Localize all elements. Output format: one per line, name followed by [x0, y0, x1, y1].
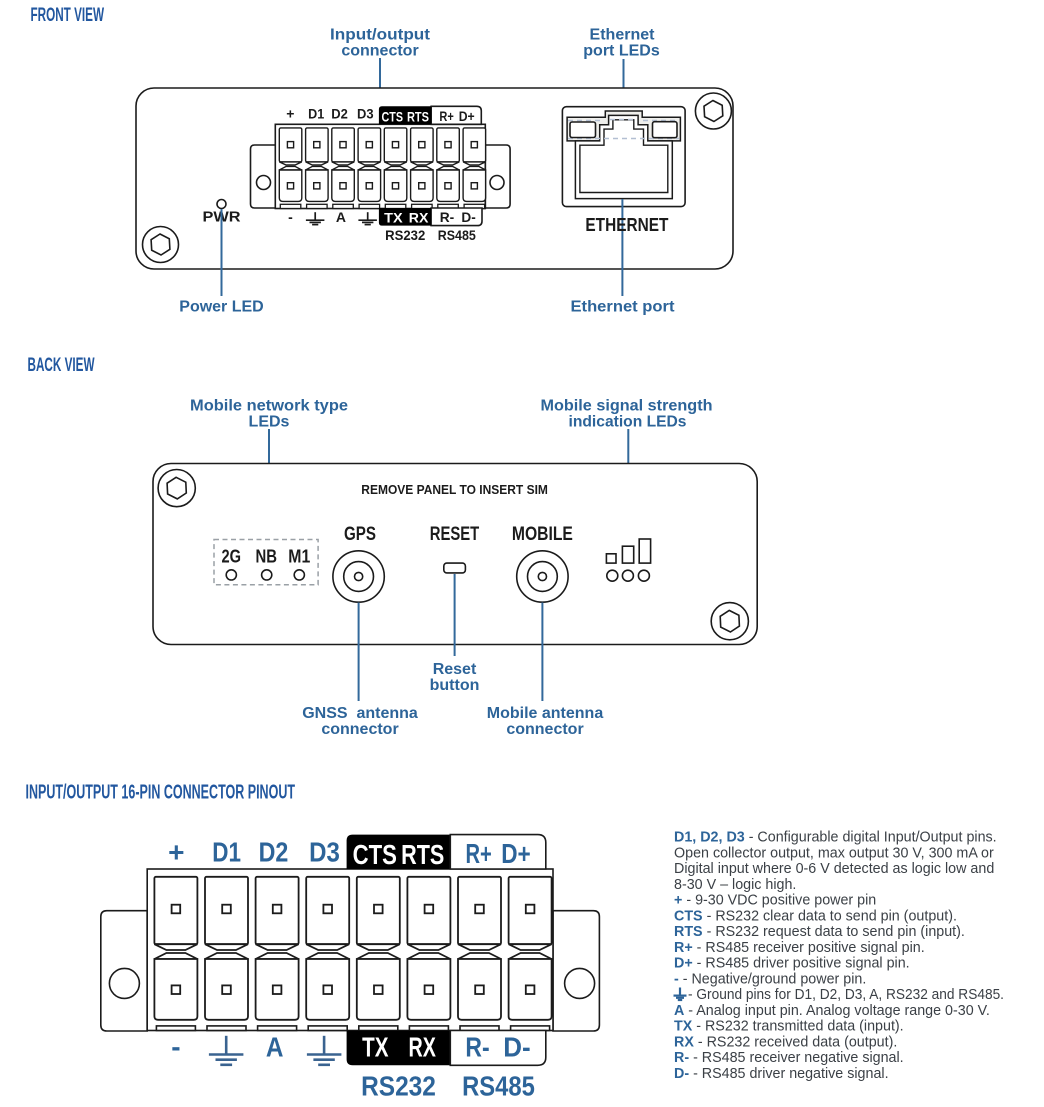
svg-text:RS485: RS485 — [438, 227, 476, 243]
svg-text:FRONT VIEW: FRONT VIEW — [31, 4, 105, 26]
svg-text:RTS: RTS — [407, 108, 429, 124]
svg-text:ETHERNET: ETHERNET — [585, 214, 669, 235]
svg-text:D2: D2 — [259, 837, 289, 868]
svg-text:- - Negative/ground power pin.: - - Negative/ground power pin. — [674, 971, 866, 987]
svg-text:RX: RX — [409, 210, 429, 226]
svg-text:BACK VIEW: BACK VIEW — [28, 354, 95, 376]
svg-text:RESET: RESET — [430, 524, 480, 545]
svg-text:connector: connector — [321, 721, 398, 738]
svg-text:indication LEDs: indication LEDs — [569, 414, 687, 431]
svg-text:RTS - RS232 request data to se: RTS - RS232 request data to send pin (in… — [674, 924, 965, 940]
svg-text:Ethernet port: Ethernet port — [571, 299, 676, 316]
svg-text:2G: 2G — [221, 547, 241, 567]
svg-text:RX: RX — [409, 1032, 437, 1063]
svg-text:D3: D3 — [357, 106, 374, 122]
svg-text:GPS: GPS — [344, 524, 376, 545]
svg-text:Open collector output, max out: Open collector output, max output 30 V, … — [674, 845, 994, 861]
svg-text:R+: R+ — [439, 108, 453, 124]
svg-text:R-: R- — [465, 1032, 489, 1063]
svg-text:NB: NB — [256, 547, 278, 567]
svg-text:-: - — [288, 209, 293, 225]
svg-text:port LEDs: port LEDs — [583, 43, 660, 60]
svg-text:Input/output: Input/output — [330, 27, 431, 44]
svg-text:D- - RS485 driver negative sig: D- - RS485 driver negative signal. — [674, 1066, 889, 1082]
svg-text:TX: TX — [384, 210, 403, 226]
svg-text:+: + — [286, 106, 294, 122]
svg-text:R+: R+ — [465, 838, 491, 869]
svg-text:D1, D2, D3 - Configurable digi: D1, D2, D3 - Configurable digital Input/… — [674, 830, 997, 846]
svg-text:GNSS antenna: GNSS antenna — [302, 705, 418, 722]
svg-text:Mobile network type: Mobile network type — [190, 398, 348, 415]
svg-text:CTS - RS232 clear data to send: CTS - RS232 clear data to send pin (outp… — [674, 908, 957, 924]
svg-text:INPUT/OUTPUT 16-PIN CONNECTOR: INPUT/OUTPUT 16-PIN CONNECTOR PINOUT — [26, 782, 296, 804]
svg-text:LEDs: LEDs — [249, 414, 290, 431]
svg-text:Mobile signal strength: Mobile signal strength — [541, 398, 713, 415]
svg-text:RTS: RTS — [401, 839, 444, 870]
svg-text:8-30 V – logic high.: 8-30 V – logic high. — [674, 877, 796, 893]
svg-text:R+ - RS485 receiver positive s: R+ - RS485 receiver positive signal pin. — [674, 940, 925, 956]
svg-text:D-: D- — [503, 1032, 530, 1063]
svg-text:REMOVE PANEL TO INSERT SIM: REMOVE PANEL TO INSERT SIM — [361, 482, 548, 497]
svg-text:TX: TX — [362, 1032, 389, 1063]
svg-text:D+ - RS485 driver positive sig: D+ - RS485 driver positive signal pin. — [674, 956, 910, 972]
svg-text:CTS: CTS — [353, 839, 397, 870]
svg-text:A: A — [336, 209, 346, 225]
svg-text:+: + — [168, 837, 184, 868]
svg-text:TX - RS232 transmitted data (i: TX - RS232 transmitted data (input). — [674, 1019, 904, 1035]
svg-text:RX - RS232 received data (outp: RX - RS232 received data (output). — [674, 1034, 897, 1050]
svg-text:D1: D1 — [308, 106, 324, 122]
svg-text:MOBILE: MOBILE — [512, 524, 573, 545]
svg-text:R-: R- — [440, 209, 455, 225]
svg-text:Reset: Reset — [433, 661, 477, 678]
svg-text:A: A — [266, 1032, 284, 1063]
svg-text:Ethernet: Ethernet — [590, 27, 656, 44]
svg-text:D+: D+ — [501, 838, 531, 869]
svg-text:connector: connector — [341, 43, 418, 60]
svg-text:connector: connector — [506, 721, 583, 738]
svg-text:Digital input where 0-6 V dete: Digital input where 0-6 V detected as lo… — [674, 861, 994, 877]
svg-text:button: button — [430, 677, 480, 694]
svg-text:R- - RS485 receiver negative s: R- - RS485 receiver negative signal. — [674, 1050, 904, 1066]
svg-text:D1: D1 — [212, 837, 241, 868]
svg-text:D2: D2 — [331, 106, 348, 122]
svg-text:M1: M1 — [288, 547, 310, 567]
svg-text:RS232: RS232 — [361, 1071, 436, 1102]
svg-text:RS485: RS485 — [462, 1071, 535, 1102]
svg-text:A - Analog input pin. Analog v: A - Analog input pin. Analog voltage ran… — [674, 1003, 990, 1019]
svg-text:- Ground pins for D1, D2, D3,: - Ground pins for D1, D2, D3, A, RS232 a… — [688, 987, 1004, 1003]
svg-text:D3: D3 — [309, 837, 340, 868]
svg-text:D+: D+ — [459, 108, 475, 124]
svg-text:RS232: RS232 — [385, 227, 425, 243]
svg-text:Power LED: Power LED — [179, 299, 263, 316]
svg-text:D-: D- — [461, 209, 476, 225]
svg-text:+ - 9-30 VDC positive power pi: + - 9-30 VDC positive power pin — [674, 893, 876, 909]
svg-text:-: - — [171, 1031, 180, 1062]
svg-text:Mobile antenna: Mobile antenna — [487, 705, 604, 722]
svg-text:CTS: CTS — [382, 108, 404, 124]
